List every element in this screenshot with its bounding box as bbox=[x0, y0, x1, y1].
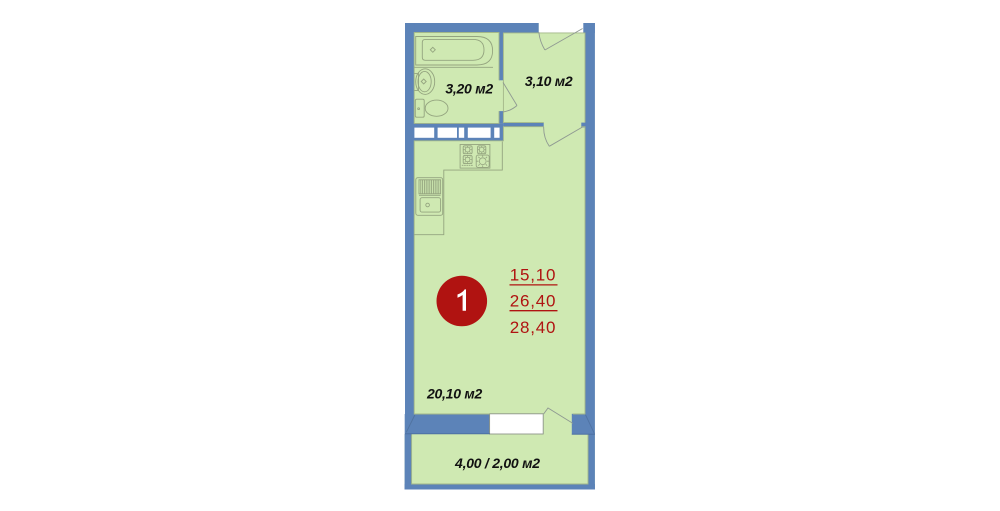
svg-text:3,10 м2: 3,10 м2 bbox=[525, 73, 573, 89]
svg-text:3,20 м2: 3,20 м2 bbox=[445, 81, 493, 97]
svg-text:20,10 м2: 20,10 м2 bbox=[426, 386, 483, 402]
svg-text:28,40: 28,40 bbox=[510, 318, 557, 337]
svg-text:26,40: 26,40 bbox=[510, 292, 557, 311]
svg-text:15,10: 15,10 bbox=[510, 266, 557, 285]
svg-text:4,00 / 2,00 м2: 4,00 / 2,00 м2 bbox=[454, 455, 540, 471]
